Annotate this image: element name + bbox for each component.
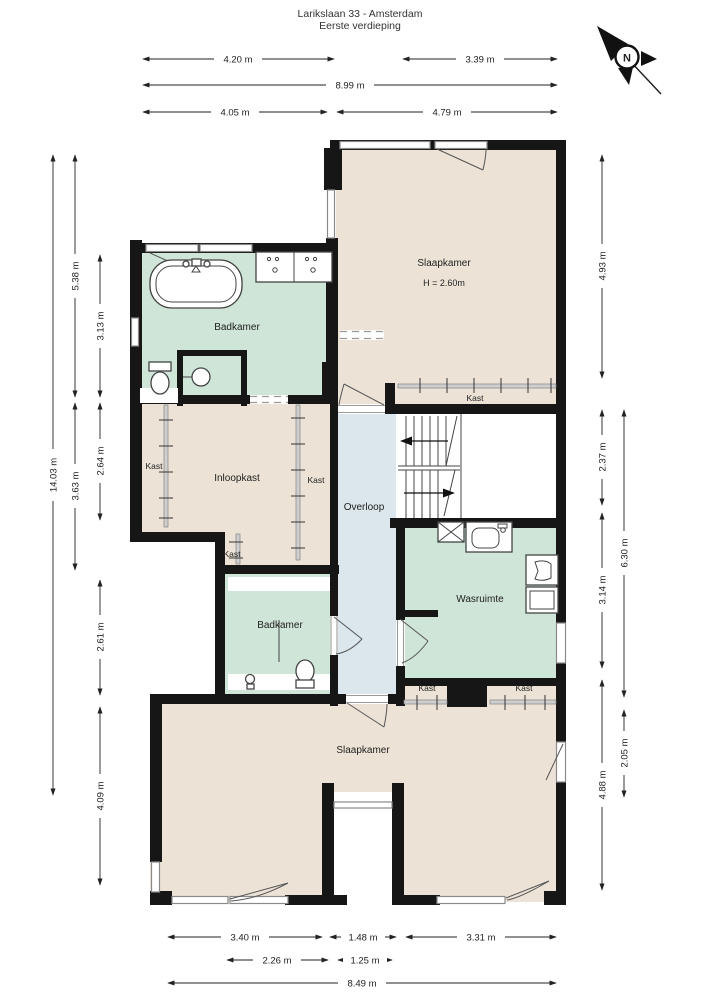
svg-text:3.40 m: 3.40 m bbox=[230, 933, 259, 944]
dim-right-6: 2.05 m bbox=[618, 710, 631, 797]
svg-text:3.14 m: 3.14 m bbox=[598, 575, 609, 604]
dim-right-4: 4.88 m bbox=[596, 680, 609, 890]
window-wasruimte-right bbox=[557, 623, 566, 663]
dim-bottom-2: 1.48 m bbox=[330, 931, 396, 944]
label-wasruimte: Wasruimte bbox=[456, 594, 504, 605]
svg-text:2.05 m: 2.05 m bbox=[620, 738, 631, 767]
label-kast-small: Kast bbox=[223, 549, 241, 559]
svg-text:8.49 m: 8.49 m bbox=[347, 979, 376, 990]
dim-top-4: 4.05 m bbox=[143, 106, 327, 119]
window-badkamer-left bbox=[132, 318, 139, 346]
dim-top-2: 3.39 m bbox=[403, 53, 557, 66]
label-badkamer-top: Badkamer bbox=[214, 322, 260, 333]
label-ceiling-height: H = 2.60m bbox=[423, 278, 465, 288]
room-overloop bbox=[334, 404, 396, 706]
svg-text:3.13 m: 3.13 m bbox=[96, 311, 107, 340]
washer-icon bbox=[526, 555, 558, 585]
window-slaapkamer-top-2 bbox=[435, 142, 487, 149]
floorplan-canvas: Larikslaan 33 - Amsterdam Eerste verdiep… bbox=[0, 0, 707, 1000]
svg-text:2.26 m: 2.26 m bbox=[262, 956, 291, 967]
label-overloop: Overloop bbox=[344, 502, 385, 513]
dryer-icon bbox=[526, 587, 558, 613]
svg-text:3.63 m: 3.63 m bbox=[71, 471, 82, 500]
toilet-icon-bottom bbox=[296, 660, 314, 688]
drain-icon bbox=[246, 675, 255, 690]
window-slaapkamer-top-1 bbox=[340, 142, 430, 149]
svg-text:4.88 m: 4.88 m bbox=[598, 770, 609, 799]
svg-text:6.30 m: 6.30 m bbox=[620, 538, 631, 567]
dim-bottom-5: 1.25 m bbox=[338, 954, 392, 967]
svg-text:4.05 m: 4.05 m bbox=[220, 108, 249, 119]
window-bottom-left bbox=[172, 897, 228, 904]
svg-text:2.64 m: 2.64 m bbox=[96, 446, 107, 475]
compass-rose-icon: N bbox=[597, 26, 661, 94]
counter-top-strip bbox=[228, 577, 333, 591]
dim-left-1: 14.03 m bbox=[47, 155, 60, 795]
label-slaapkamer-top: Slaapkamer bbox=[417, 258, 471, 269]
dim-bottom-3: 3.31 m bbox=[406, 931, 556, 944]
svg-text:4.20 m: 4.20 m bbox=[223, 55, 252, 66]
dim-left-4: 3.13 m bbox=[94, 255, 107, 397]
dim-left-5: 2.64 m bbox=[94, 403, 107, 520]
dim-top-5: 4.79 m bbox=[337, 106, 557, 119]
window-slaapkamer-left bbox=[328, 190, 335, 238]
label-kast-mid: Kast bbox=[307, 475, 325, 485]
dim-left-3: 3.63 m bbox=[69, 403, 82, 570]
label-inloopkast: Inloopkast bbox=[214, 473, 260, 484]
svg-text:4.93 m: 4.93 m bbox=[598, 251, 609, 280]
bathtub-icon bbox=[150, 259, 242, 308]
dim-right-2: 2.37 m bbox=[596, 410, 609, 505]
dim-right-1: 4.93 m bbox=[596, 155, 609, 378]
dim-left-2: 5.38 m bbox=[69, 155, 82, 397]
dim-top-1: 4.20 m bbox=[143, 53, 334, 66]
svg-text:3.39 m: 3.39 m bbox=[465, 55, 494, 66]
label-badkamer-bottom: Badkamer bbox=[257, 620, 303, 631]
staircase bbox=[398, 414, 461, 518]
counter-bottom-strip bbox=[228, 674, 333, 690]
svg-text:2.61 m: 2.61 m bbox=[96, 622, 107, 651]
dim-bottom-4: 2.26 m bbox=[227, 954, 328, 967]
dim-left-6: 2.61 m bbox=[94, 580, 107, 695]
svg-text:2.37 m: 2.37 m bbox=[598, 442, 609, 471]
svg-text:5.38 m: 5.38 m bbox=[71, 261, 82, 290]
svg-text:8.99 m: 8.99 m bbox=[335, 81, 364, 92]
window-badkamer-top-1 bbox=[146, 245, 198, 252]
label-slaapkamer-bottom: Slaapkamer bbox=[336, 745, 390, 756]
dim-bottom-1: 3.40 m bbox=[168, 931, 322, 944]
wasruimte-sink-icon bbox=[466, 522, 512, 552]
svg-text:1.25 m: 1.25 m bbox=[350, 956, 379, 967]
compass-north-label: N bbox=[623, 53, 631, 65]
label-kast-slaapkamer: Kast bbox=[466, 393, 484, 403]
svg-text:4.79 m: 4.79 m bbox=[432, 108, 461, 119]
vanity-double-sink-icon bbox=[256, 252, 332, 282]
dim-right-5: 6.30 m bbox=[618, 410, 631, 697]
dim-right-3: 3.14 m bbox=[596, 513, 609, 668]
plan-title: Larikslaan 33 - Amsterdam bbox=[298, 8, 423, 20]
dim-bottom-6: 8.49 m bbox=[168, 977, 556, 990]
label-kast-left: Kast bbox=[145, 461, 163, 471]
svg-text:4.09 m: 4.09 m bbox=[96, 781, 107, 810]
label-kast-bottom-right: Kast bbox=[515, 683, 533, 693]
svg-text:14.03 m: 14.03 m bbox=[49, 458, 60, 492]
window-slaapkamer-bottom-left bbox=[152, 862, 160, 892]
window-notch bbox=[334, 802, 392, 808]
window-badkamer-top-2 bbox=[200, 245, 252, 252]
dim-top-3: 8.99 m bbox=[143, 79, 557, 92]
label-kast-bottom-left: Kast bbox=[418, 683, 436, 693]
svg-text:3.31 m: 3.31 m bbox=[466, 933, 495, 944]
dim-left-7: 4.09 m bbox=[94, 707, 107, 885]
plan-subtitle: Eerste verdieping bbox=[319, 20, 401, 32]
svg-text:1.48 m: 1.48 m bbox=[348, 933, 377, 944]
duct-shaft-icon bbox=[438, 522, 464, 542]
window-bottom-right bbox=[437, 897, 505, 904]
